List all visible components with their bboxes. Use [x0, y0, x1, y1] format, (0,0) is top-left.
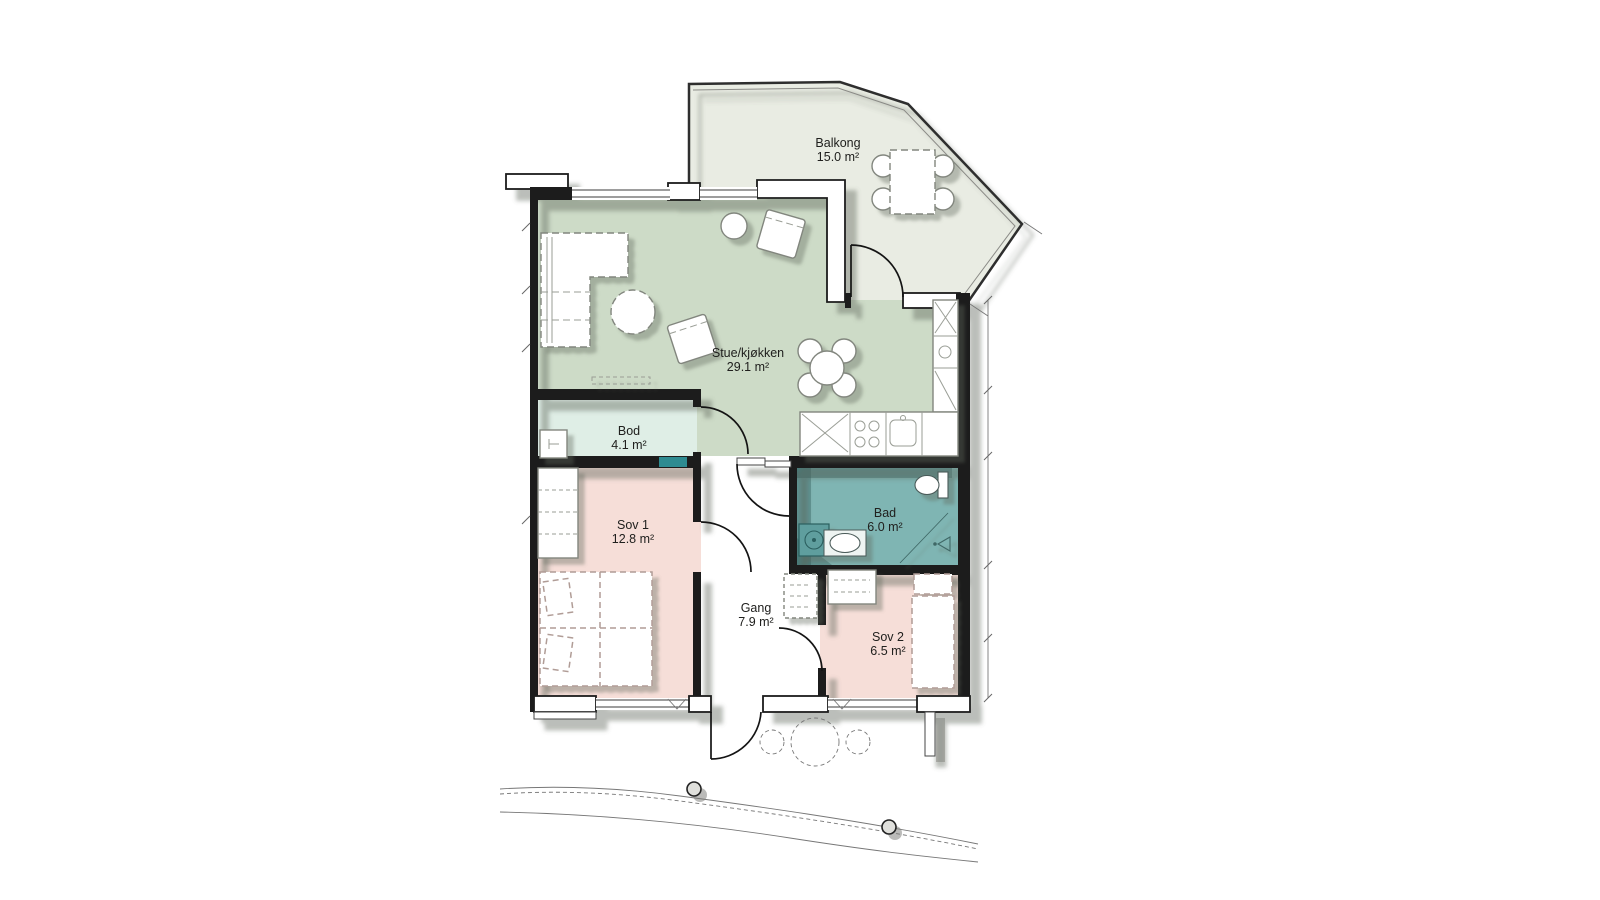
- label-stue-name: Stue/kjøkken: [712, 346, 784, 360]
- wardrobe-sov1: [538, 468, 578, 558]
- wall-balcony-jamb: [845, 293, 851, 308]
- kitchen-counter-right: [933, 300, 958, 412]
- wall-pier-bottom-2: [689, 696, 711, 712]
- wall-left: [530, 187, 538, 712]
- label-sov1-area: 12.8 m²: [612, 532, 654, 546]
- wall-bad-left: [789, 468, 797, 565]
- label-bad-area: 6.0 m²: [867, 520, 902, 534]
- coffee-table: [611, 290, 655, 334]
- wall-bod-top: [530, 389, 701, 400]
- kitchen-counter-bottom: [800, 412, 958, 456]
- window-bottom-1: [596, 698, 689, 710]
- bathroom-sink: [824, 530, 866, 556]
- wall-right: [958, 293, 970, 712]
- gang-threshold-2: [765, 461, 791, 467]
- wall-sov1-gang-lower: [693, 572, 701, 698]
- gang-threshold-1: [737, 458, 765, 465]
- window-sill-bottom: [534, 712, 596, 719]
- outdoor-table-set: [760, 718, 870, 766]
- entrance-door: [711, 712, 761, 759]
- exterior-column: [925, 712, 935, 756]
- wall-niche-teal: [659, 457, 687, 467]
- wall-pier-bottom-3: [763, 696, 828, 712]
- label-gang-name: Gang: [741, 601, 772, 615]
- wall-pier-bottom-4: [917, 696, 970, 712]
- bod-water-heater: [540, 430, 567, 458]
- label-gang-area: 7.9 m²: [738, 615, 773, 629]
- label-balkong-name: Balkong: [815, 136, 860, 150]
- window-top-1: [572, 187, 670, 200]
- path-node-1: [687, 782, 701, 796]
- wall-gang-sov2-upper: [818, 565, 826, 625]
- label-bod-area: 4.1 m²: [611, 438, 646, 452]
- hall-dresser: [784, 574, 817, 618]
- plant: [721, 213, 747, 239]
- label-balkong-area: 15.0 m²: [817, 150, 859, 164]
- site-path: [500, 782, 978, 862]
- window-sill: [506, 174, 568, 189]
- label-sov2-area: 6.5 m²: [870, 644, 905, 658]
- wall-bod-right-stub: [693, 389, 701, 407]
- path-node-2: [882, 820, 896, 834]
- label-bod-name: Bod: [618, 424, 640, 438]
- dining-table: [810, 351, 844, 385]
- floor-plan-drawing: Balkong 15.0 m² Stue/kjøkken 29.1 m² Bod…: [0, 0, 1600, 900]
- balcony-table: [890, 150, 935, 214]
- label-sov1-name: Sov 1: [617, 518, 649, 532]
- window-top-2: [700, 187, 757, 200]
- wall-gang-sov2-lower: [818, 668, 826, 698]
- wall-pier-bottom-1: [534, 696, 596, 712]
- label-stue-area: 29.1 m²: [727, 360, 769, 374]
- label-bad-name: Bad: [874, 506, 896, 520]
- single-bed: [912, 574, 954, 688]
- wall-pier-top: [668, 183, 700, 200]
- floor-plan-page: Balkong 15.0 m² Stue/kjøkken 29.1 m² Bod…: [0, 0, 1600, 900]
- desk-sov2: [828, 570, 876, 604]
- label-sov2-name: Sov 2: [872, 630, 904, 644]
- double-bed: [540, 572, 652, 686]
- wall-middle-right: [789, 456, 962, 468]
- wall-sov1-gang-upper: [693, 452, 701, 522]
- column-shadow: [936, 718, 945, 762]
